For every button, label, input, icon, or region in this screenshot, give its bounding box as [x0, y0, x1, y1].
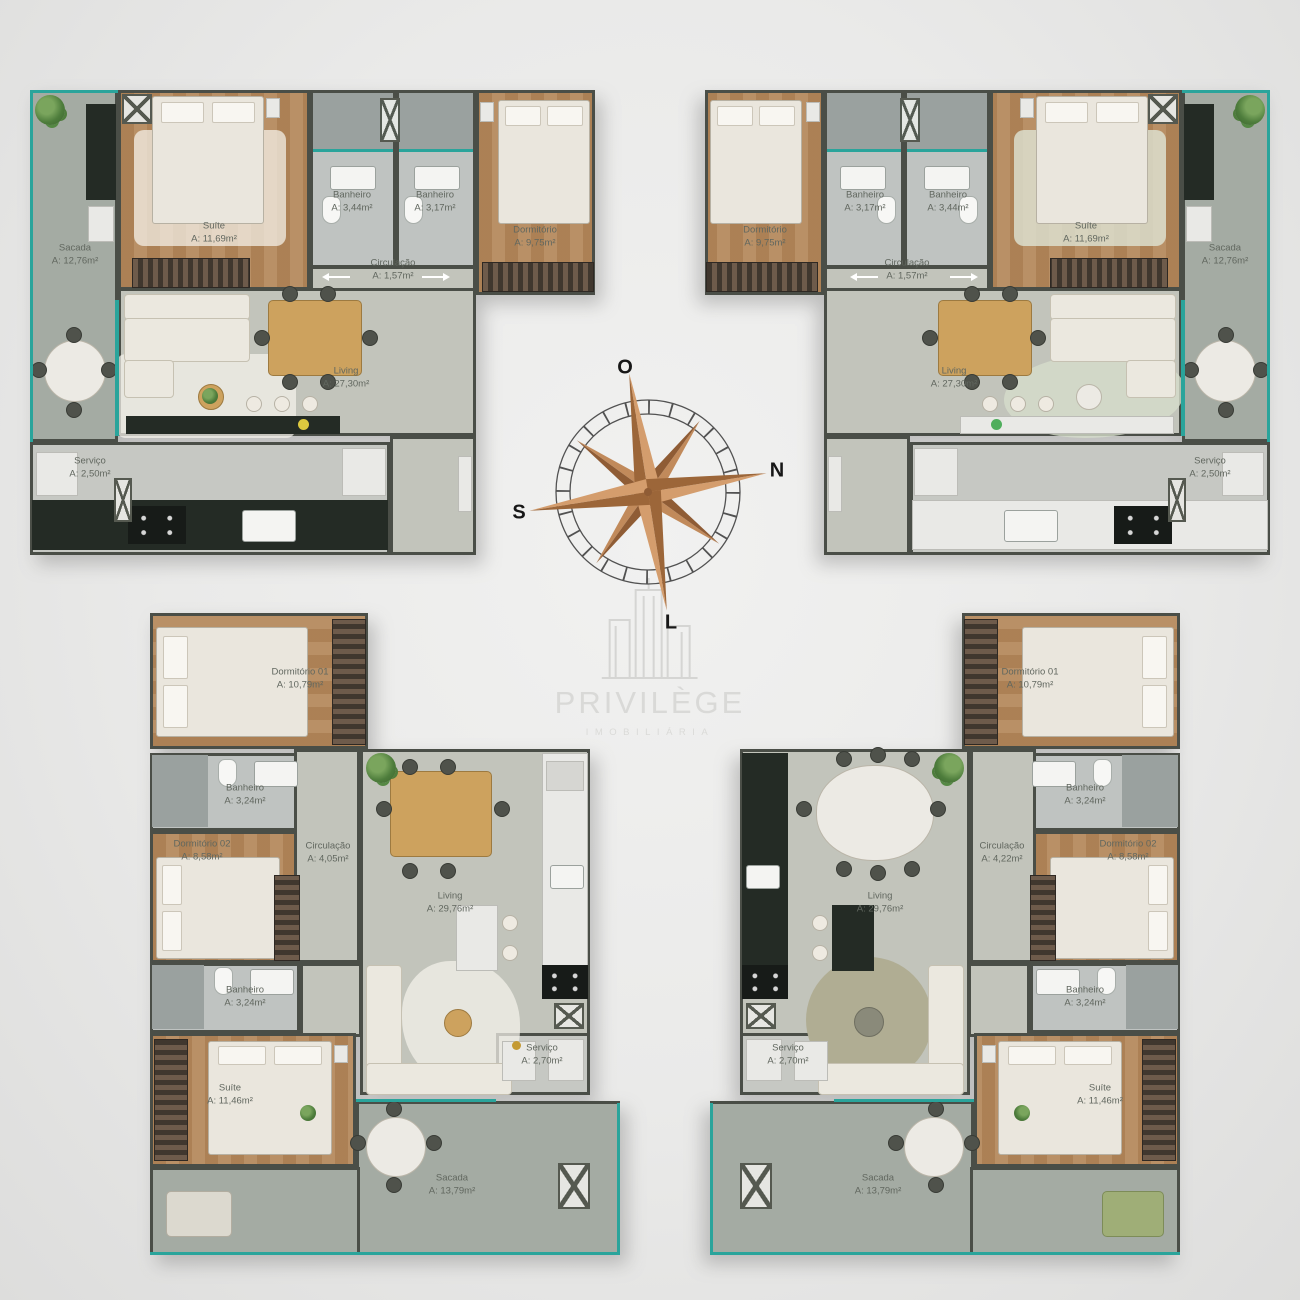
room-name: Living: [427, 890, 473, 903]
room-label: BanheiroA: 3,44m²: [331, 189, 372, 214]
sofa: [124, 294, 250, 320]
room-area: A: 3,24m²: [224, 997, 265, 1010]
room-area: A: 2,70m²: [521, 1055, 562, 1068]
sofa-chaise: [124, 360, 174, 398]
room-name: Serviço: [1189, 455, 1230, 468]
balcony-table: [1194, 340, 1256, 402]
stool: [812, 915, 828, 931]
room-label: CirculaçãoA: 1,57m²: [885, 257, 930, 282]
sofa: [1050, 294, 1176, 320]
room-name: Sacada: [1202, 242, 1248, 255]
sofa: [366, 1063, 512, 1095]
chair: [888, 1135, 904, 1151]
dining-table: [390, 771, 492, 857]
room-label: Dormitório 02A: 8,58m²: [1099, 838, 1156, 863]
bed: [1036, 96, 1148, 224]
compass-label-east: L: [665, 612, 677, 635]
room-name: Dormitório 02: [173, 838, 230, 851]
balcony-table: [44, 340, 106, 402]
stool: [502, 945, 518, 961]
chair: [440, 863, 456, 879]
balcony-sink: [1186, 206, 1212, 242]
room-area: A: 11,69m²: [191, 233, 237, 246]
room-name: Banheiro: [844, 189, 885, 202]
room-label: BanheiroA: 3,24m²: [1064, 984, 1105, 1009]
chair: [386, 1177, 402, 1193]
room-area: A: 27,30m²: [931, 378, 977, 391]
room-label: Dormitório 01A: 10,79m²: [271, 666, 328, 691]
glass-window: [30, 90, 118, 93]
room-area: A: 11,46m²: [207, 1095, 253, 1108]
bed: [498, 100, 590, 224]
room-name: Banheiro: [224, 984, 265, 997]
wardrobe: [1030, 875, 1056, 961]
nightstand: [266, 98, 280, 118]
room-name: Serviço: [767, 1042, 808, 1055]
chair: [386, 1101, 402, 1117]
stool: [246, 396, 262, 412]
room-area: A: 3,44m²: [331, 202, 372, 215]
bed: [710, 100, 802, 224]
unit-top-right: SacadaA: 12,76m² SuíteA: 11,69m² Banheir…: [705, 90, 1270, 555]
room-name: Sacada: [429, 1172, 475, 1185]
nightstand: [1020, 98, 1034, 118]
room-area: A: 8,58m²: [173, 851, 230, 864]
kitchen-sink: [746, 865, 780, 889]
room-label: SuíteA: 11,69m²: [1063, 220, 1109, 245]
sofa: [1050, 318, 1176, 362]
stool: [502, 915, 518, 931]
room-label: SuíteA: 11,69m²: [191, 220, 237, 245]
room-area: A: 3,44m²: [927, 202, 968, 215]
room-area: A: 2,50m²: [1189, 468, 1230, 481]
door-arrow: [852, 276, 878, 278]
chair: [282, 286, 298, 302]
plant: [300, 1105, 316, 1121]
room-area: A: 2,50m²: [69, 468, 110, 481]
unit-bottom-right: Dormitório 01A: 10,79m² BanheiroA: 3,24m…: [710, 613, 1180, 1258]
coffee-table: [444, 1009, 472, 1037]
room-label: BanheiroA: 3,24m²: [1064, 782, 1105, 807]
kitchen-sink: [1004, 510, 1058, 542]
stool: [1038, 396, 1054, 412]
room-name: Suíte: [191, 220, 237, 233]
chair: [31, 362, 47, 378]
room-area: A: 11,69m²: [1063, 233, 1109, 246]
room-name: Suíte: [1077, 1082, 1123, 1095]
room-name: Sacada: [52, 242, 98, 255]
room-label: LivingA: 29,76m²: [857, 890, 903, 915]
room-name: Banheiro: [927, 189, 968, 202]
door-arrow: [950, 276, 976, 278]
chair: [964, 286, 980, 302]
unit-bottom-left: Dormitório 01A: 10,79m² BanheiroA: 3,24m…: [150, 613, 620, 1258]
room-living-ext: [300, 963, 362, 1037]
room-label: ServiçoA: 2,70m²: [767, 1042, 808, 1067]
bathroom-sink: [924, 166, 970, 190]
balcony-table: [904, 1117, 964, 1177]
chair: [426, 1135, 442, 1151]
wardrobe: [132, 258, 250, 288]
chair: [66, 327, 82, 343]
chair: [1030, 330, 1046, 346]
balcony-table: [366, 1117, 426, 1177]
console: [828, 456, 842, 512]
shaft: [554, 1003, 584, 1029]
room-name: Dormitório: [743, 224, 787, 237]
room-name: Banheiro: [331, 189, 372, 202]
bbq-counter: [1184, 104, 1214, 200]
stool: [1010, 396, 1026, 412]
stool: [812, 945, 828, 961]
room-label: CirculaçãoA: 4,22m²: [980, 840, 1025, 865]
chair: [928, 1177, 944, 1193]
room-area: A: 2,70m²: [767, 1055, 808, 1068]
room-name: Banheiro: [224, 782, 265, 795]
chair: [870, 865, 886, 881]
room-area: A: 4,05m²: [306, 853, 351, 866]
bed: [156, 857, 280, 959]
room-name: Serviço: [69, 455, 110, 468]
shaft: [558, 1163, 590, 1209]
room-area: A: 13,79m²: [855, 1185, 901, 1198]
room-label: LivingA: 27,30m²: [931, 365, 977, 390]
shower-glass: [827, 149, 901, 152]
room-name: Circulação: [306, 840, 351, 853]
room-label: ServiçoA: 2,70m²: [521, 1042, 562, 1067]
room-label: BanheiroA: 3,17m²: [844, 189, 885, 214]
bathroom-sink: [414, 166, 460, 190]
shower-glass: [907, 149, 987, 152]
chair: [1183, 362, 1199, 378]
room-area: A: 12,76m²: [52, 255, 98, 268]
glass-door: [356, 1099, 496, 1102]
stool: [982, 396, 998, 412]
room-area: A: 1,57m²: [371, 270, 416, 283]
chair: [376, 801, 392, 817]
fridge: [914, 448, 958, 496]
wardrobe: [274, 875, 300, 961]
bbq-counter: [86, 104, 116, 200]
chair: [904, 751, 920, 767]
chair: [254, 330, 270, 346]
coffee-table: [1076, 384, 1102, 410]
chair: [1218, 327, 1234, 343]
chair: [836, 751, 852, 767]
decor-bowl: [991, 419, 1002, 430]
room-area: A: 8,58m²: [1099, 851, 1156, 864]
room-name: Living: [323, 365, 369, 378]
room-name: Circulação: [371, 257, 416, 270]
chair: [362, 330, 378, 346]
room-area: A: 10,79m²: [271, 679, 328, 692]
glass-railing: [150, 1252, 620, 1255]
plant: [934, 753, 964, 783]
chair: [66, 402, 82, 418]
shaft: [114, 478, 132, 522]
room-name: Living: [931, 365, 977, 378]
room-area: A: 3,24m²: [1064, 795, 1105, 808]
fridge: [342, 448, 386, 496]
balcony-sink: [88, 206, 114, 242]
glass-railing: [710, 1103, 713, 1253]
glass-window: [30, 90, 33, 442]
room-area: A: 9,75m²: [513, 237, 557, 250]
room-name: Sacada: [855, 1172, 901, 1185]
wardrobe: [154, 1039, 188, 1161]
stove: [1114, 506, 1172, 544]
room-name: Banheiro: [1064, 984, 1105, 997]
shaft: [1168, 478, 1186, 522]
bed: [152, 96, 264, 224]
glass-railing: [710, 1252, 1180, 1255]
glass-window: [1267, 90, 1270, 442]
chair: [964, 1135, 980, 1151]
kitchen-counter: [912, 500, 1268, 550]
room-label: DormitórioA: 9,75m²: [513, 224, 557, 249]
nightstand: [334, 1045, 348, 1063]
room-label: Dormitório 01A: 10,79m²: [1001, 666, 1058, 691]
door-arrow: [324, 276, 350, 278]
shower: [827, 93, 901, 149]
wardrobe: [706, 262, 818, 292]
shower: [399, 93, 473, 149]
room-area: A: 3,17m²: [844, 202, 885, 215]
room-label: CirculaçãoA: 1,57m²: [371, 257, 416, 282]
room-label: SacadaA: 13,79m²: [855, 1172, 901, 1197]
room-name: Circulação: [980, 840, 1025, 853]
shaft: [740, 1163, 772, 1209]
kitchen-sink: [242, 510, 296, 542]
room-label: DormitórioA: 9,75m²: [743, 224, 787, 249]
chair: [836, 861, 852, 877]
room-label: BanheiroA: 3,17m²: [414, 189, 455, 214]
shower: [152, 965, 204, 1029]
stove: [742, 965, 788, 999]
shaft: [1148, 94, 1178, 124]
decor-bowl: [298, 419, 309, 430]
room-name: Circulação: [885, 257, 930, 270]
shaft: [122, 94, 152, 124]
room-name: Dormitório: [513, 224, 557, 237]
nightstand: [806, 102, 820, 122]
room-label: ServiçoA: 2,50m²: [69, 455, 110, 480]
room-area: A: 27,30m²: [323, 378, 369, 391]
room-area: A: 10,79m²: [1001, 679, 1058, 692]
sofa-chaise: [1126, 360, 1176, 398]
chair: [402, 863, 418, 879]
room-name: Suíte: [1063, 220, 1109, 233]
fridge: [546, 761, 584, 791]
room-label: Dormitório 02A: 8,58m²: [173, 838, 230, 863]
chair: [1218, 402, 1234, 418]
coffee-table: [854, 1007, 884, 1037]
room-label: BanheiroA: 3,44m²: [927, 189, 968, 214]
lounge-chair: [166, 1191, 232, 1237]
room-label: SacadaA: 12,76m²: [52, 242, 98, 267]
shaft: [746, 1003, 776, 1029]
chair: [1002, 286, 1018, 302]
chair: [320, 286, 336, 302]
room-area: A: 12,76m²: [1202, 255, 1248, 268]
chair: [922, 330, 938, 346]
floor-plan-sheet: PRIVILÈGE IMOBILIÁRIA O N S L: [0, 0, 1300, 1300]
glass-railing: [617, 1103, 620, 1253]
compass-label-north: N: [770, 460, 784, 483]
watermark-subtitle: IMOBILIÁRIA: [555, 727, 746, 738]
stool: [274, 396, 290, 412]
room-label: SuíteA: 11,46m²: [1077, 1082, 1123, 1107]
room-name: Dormitório 01: [1001, 666, 1058, 679]
room-label: SacadaA: 12,76m²: [1202, 242, 1248, 267]
room-label: BanheiroA: 3,24m²: [224, 984, 265, 1009]
room-area: A: 29,76m²: [857, 903, 903, 916]
door-arrow: [422, 276, 448, 278]
chair: [440, 759, 456, 775]
chair: [870, 747, 886, 763]
room-area: A: 3,24m²: [1064, 997, 1105, 1010]
sofa: [818, 1063, 964, 1095]
stove: [542, 965, 588, 999]
chair: [402, 759, 418, 775]
chair: [350, 1135, 366, 1151]
room-area: A: 3,17m²: [414, 202, 455, 215]
room-area: A: 3,24m²: [224, 795, 265, 808]
plant: [35, 95, 65, 125]
dining-table: [816, 765, 934, 861]
chair: [494, 801, 510, 817]
kitchen-sink: [550, 865, 584, 889]
wardrobe: [332, 619, 366, 745]
room-name: Dormitório 02: [1099, 838, 1156, 851]
chair: [1002, 374, 1018, 390]
plant: [1014, 1105, 1030, 1121]
room-label: SacadaA: 13,79m²: [429, 1172, 475, 1197]
chair: [930, 801, 946, 817]
room-area: A: 9,75m²: [743, 237, 787, 250]
glass-window: [1182, 90, 1270, 93]
lounge-chair: [1102, 1191, 1164, 1237]
room-living-ext: [968, 963, 1030, 1037]
room-area: A: 29,76m²: [427, 903, 473, 916]
sofa: [124, 318, 250, 362]
chair: [904, 861, 920, 877]
glass-door: [1181, 300, 1185, 436]
kitchen-counter: [32, 500, 388, 550]
glass-door: [115, 300, 119, 436]
room-area: A: 4,22m²: [980, 853, 1025, 866]
shower: [1122, 755, 1178, 827]
room-name: Banheiro: [1064, 782, 1105, 795]
room-label: SuíteA: 11,46m²: [207, 1082, 253, 1107]
bed: [1050, 857, 1174, 959]
room-area: A: 13,79m²: [429, 1185, 475, 1198]
plant: [1235, 95, 1265, 125]
room-name: Living: [857, 890, 903, 903]
wardrobe: [482, 262, 594, 292]
floor-lamp: [512, 1041, 521, 1050]
shower-glass: [313, 149, 393, 152]
plant: [202, 388, 218, 404]
glass-door: [834, 1099, 974, 1102]
chair: [928, 1101, 944, 1117]
compass-label-south: S: [512, 502, 525, 525]
watermark-title: PRIVILÈGE: [555, 685, 746, 721]
wardrobe: [964, 619, 998, 745]
shaft: [900, 98, 920, 142]
room-label: LivingA: 27,30m²: [323, 365, 369, 390]
stool: [302, 396, 318, 412]
room-name: Banheiro: [414, 189, 455, 202]
room-label: ServiçoA: 2,50m²: [1189, 455, 1230, 480]
nightstand: [982, 1045, 996, 1063]
bathroom-sink: [840, 166, 886, 190]
stove: [128, 506, 186, 544]
shaft: [380, 98, 400, 142]
wardrobe: [1142, 1039, 1176, 1161]
wardrobe: [1050, 258, 1168, 288]
room-area: A: 1,57m²: [885, 270, 930, 283]
nightstand: [480, 102, 494, 122]
chair: [796, 801, 812, 817]
compass-rose-icon: [508, 352, 788, 632]
room-label: CirculaçãoA: 4,05m²: [306, 840, 351, 865]
compass-label-west: O: [617, 357, 633, 380]
bathroom-sink: [330, 166, 376, 190]
shower: [152, 755, 208, 827]
room-area: A: 11,46m²: [1077, 1095, 1123, 1108]
chair: [282, 374, 298, 390]
shower-glass: [399, 149, 473, 152]
shower: [1126, 965, 1178, 1029]
room-label: LivingA: 29,76m²: [427, 890, 473, 915]
room-name: Serviço: [521, 1042, 562, 1055]
console: [458, 456, 472, 512]
room-name: Suíte: [207, 1082, 253, 1095]
plant: [366, 753, 396, 783]
room-name: Dormitório 01: [271, 666, 328, 679]
room-label: BanheiroA: 3,24m²: [224, 782, 265, 807]
